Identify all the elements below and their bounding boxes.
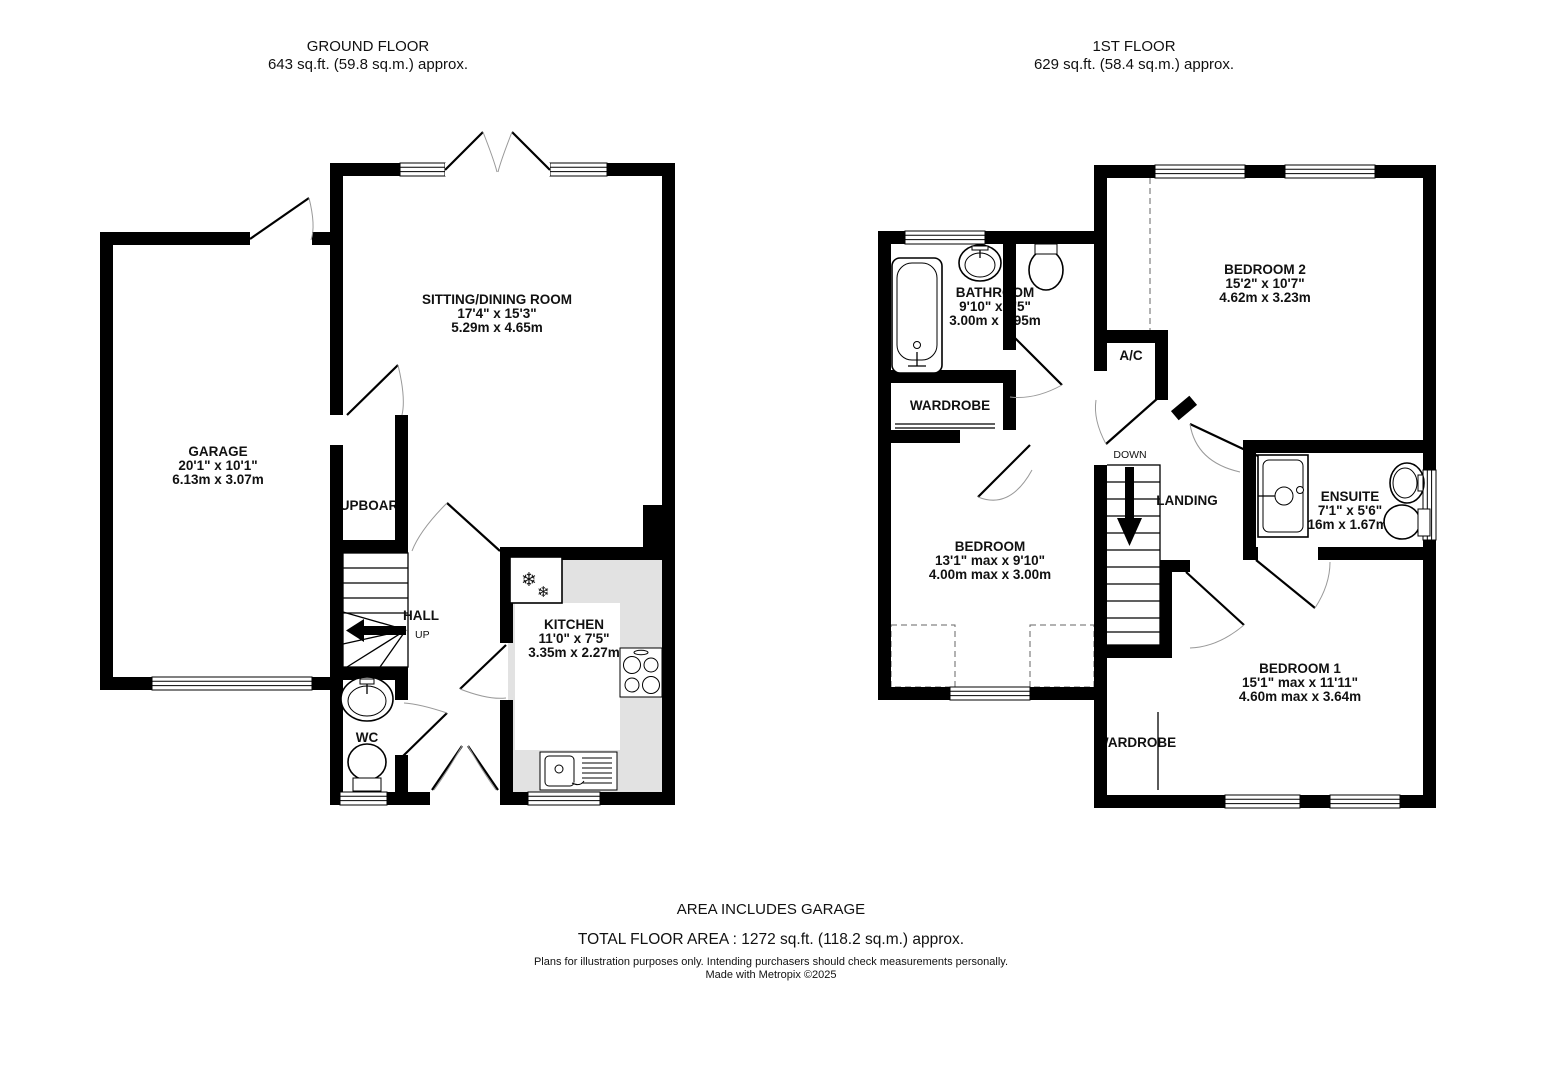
first-floor-title: 1ST FLOOR — [944, 38, 1324, 56]
wardrobe2-label: WARDROBE — [1096, 735, 1176, 750]
bathroom-toilet-icon — [1029, 244, 1063, 290]
ensuite-label: ENSUITE — [1321, 489, 1380, 504]
bathroom-imperial: 9'10" x 6'5" — [959, 299, 1031, 314]
ground-floor-area: 643 sq.ft. (59.8 sq.m.) approx. — [178, 56, 558, 74]
sitting-room-label: SITTING/DINING ROOM — [422, 292, 572, 307]
first-floor-plan: BATHROOM 9'10" x 6'5" 3.00m x 1.95m BEDR… — [860, 140, 1470, 840]
bedroom1-metric: 4.60m max x 3.64m — [1239, 689, 1361, 704]
down-label: DOWN — [1113, 449, 1146, 461]
staircase-up — [343, 553, 408, 667]
garage-metric: 6.13m x 3.07m — [172, 472, 264, 487]
bathtub-icon — [892, 258, 942, 373]
ground-floor-title: GROUND FLOOR — [178, 38, 558, 56]
kitchen-imperial: 11'0" x 7'5" — [538, 631, 609, 646]
footer: AREA INCLUDES GARAGE TOTAL FLOOR AREA : … — [371, 901, 1171, 982]
bedroom2-metric: 4.62m x 3.23m — [1219, 290, 1311, 305]
kitchen-metric: 3.35m x 2.27m — [528, 645, 620, 660]
hall-label: HALL — [403, 608, 439, 623]
garage-label: GARAGE — [188, 444, 247, 459]
hob-icon — [620, 648, 662, 697]
bedroom1-imperial: 15'1" max x 11'11" — [1242, 675, 1358, 690]
shower-icon — [1258, 455, 1308, 537]
wc-toilet-icon — [348, 744, 386, 791]
svg-text:❄: ❄ — [521, 570, 537, 591]
footer-credit: Made with Metropix ©2025 — [371, 969, 1171, 982]
footer-disclaimer: Plans for illustration purposes only. In… — [371, 956, 1171, 969]
staircase-down — [1100, 465, 1160, 645]
bedroom1-label: BEDROOM 1 — [1259, 661, 1341, 676]
ensuite-metric: 2.16m x 1.67m — [1296, 517, 1388, 532]
ensuite-basin-icon — [1390, 463, 1424, 503]
ensuite-toilet-icon — [1384, 505, 1430, 539]
ground-floor-plan: SITTING/DINING ROOM 17'4" x 15'3" 5.29m … — [80, 110, 700, 820]
landing-label: LANDING — [1156, 493, 1218, 508]
bedroom2-label: BEDROOM 2 — [1224, 262, 1306, 277]
wc-basin-icon — [341, 677, 393, 721]
kitchen-label: KITCHEN — [544, 617, 604, 632]
floorplan-page: GROUND FLOOR 643 sq.ft. (59.8 sq.m.) app… — [0, 0, 1542, 1080]
ac-label: A/C — [1119, 348, 1143, 363]
garage-imperial: 20'1" x 10'1" — [178, 458, 257, 473]
sitting-room-imperial: 17'4" x 15'3" — [457, 306, 536, 321]
first-floor-area: 629 sq.ft. (58.4 sq.m.) approx. — [944, 56, 1324, 74]
bedroom-metric: 4.00m max x 3.00m — [929, 567, 1051, 582]
bedroom2-imperial: 15'2" x 10'7" — [1225, 276, 1304, 291]
bathroom-label: BATHROOM — [956, 285, 1035, 300]
fridge-icon: ❄ ❄ — [510, 557, 562, 603]
footer-note: AREA INCLUDES GARAGE — [371, 901, 1171, 918]
up-label: UP — [415, 629, 430, 641]
wc-label: WC — [356, 730, 379, 745]
bedroom-label: BEDROOM — [955, 539, 1026, 554]
first-floor-header: 1ST FLOOR 629 sq.ft. (58.4 sq.m.) approx… — [944, 38, 1324, 74]
bathroom-metric: 3.00m x 1.95m — [949, 313, 1041, 328]
bathroom-basin-icon — [959, 245, 1001, 281]
ensuite-imperial: 7'1" x 5'6" — [1318, 503, 1382, 518]
bedroom-imperial: 13'1" max x 9'10" — [935, 553, 1045, 568]
sitting-room-metric: 5.29m x 4.65m — [451, 320, 543, 335]
kitchen-sink-icon — [540, 752, 617, 790]
ground-floor-header: GROUND FLOOR 643 sq.ft. (59.8 sq.m.) app… — [178, 38, 558, 74]
wardrobe-label: WARDROBE — [910, 398, 990, 413]
svg-text:❄: ❄ — [537, 584, 550, 601]
footer-total-area: TOTAL FLOOR AREA : 1272 sq.ft. (118.2 sq… — [371, 931, 1171, 949]
